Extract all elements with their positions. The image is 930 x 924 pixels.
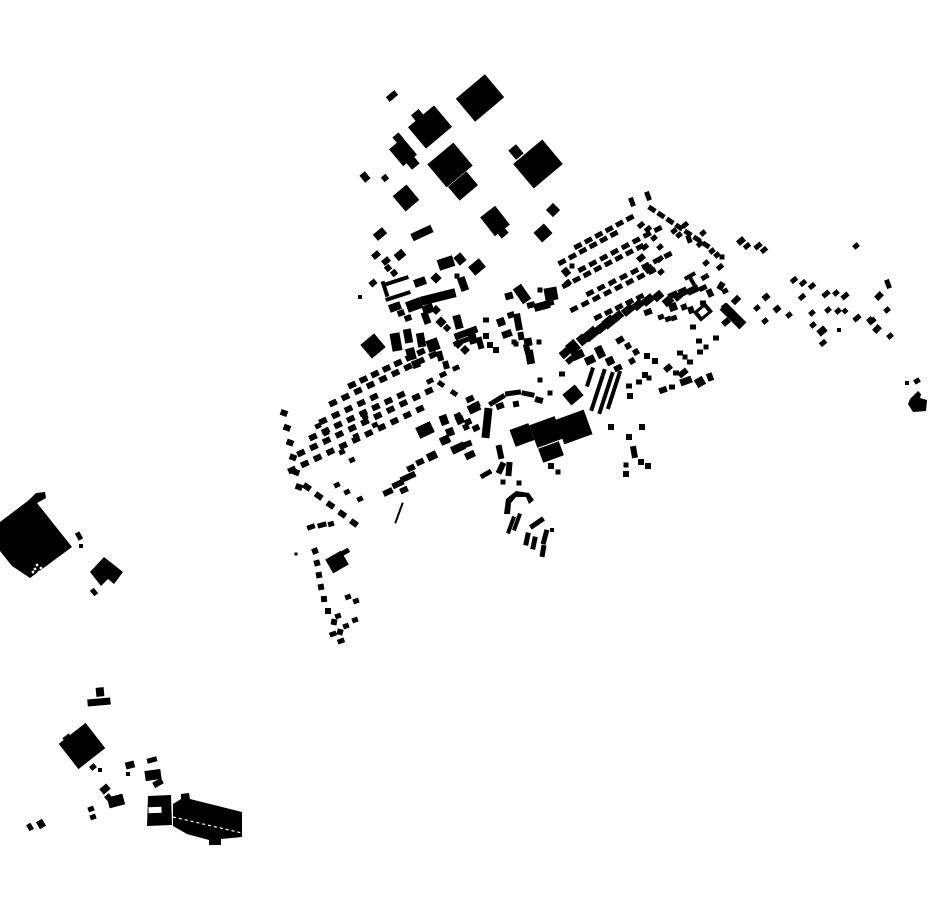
- arch-building: [504, 491, 534, 514]
- building: [541, 529, 550, 545]
- building: [437, 255, 456, 270]
- building: [523, 532, 531, 546]
- building: [368, 278, 377, 287]
- building-row-house: [580, 299, 589, 307]
- building: [381, 256, 391, 266]
- building: [381, 174, 389, 182]
- building: [538, 288, 543, 293]
- building: [720, 303, 747, 330]
- building: [761, 317, 769, 325]
- building: [334, 613, 341, 620]
- building-row-house: [426, 377, 434, 384]
- building: [837, 328, 841, 332]
- building: [884, 279, 892, 289]
- building: [688, 276, 696, 287]
- building: [905, 381, 909, 385]
- building: [624, 463, 629, 468]
- building: [626, 434, 632, 440]
- building: [821, 290, 830, 299]
- building: [96, 687, 105, 697]
- building-row-house: [328, 399, 338, 408]
- building: [394, 502, 403, 523]
- building-row-house: [411, 393, 421, 402]
- building: [624, 342, 632, 350]
- building: [550, 528, 554, 532]
- building-row-house: [331, 411, 341, 420]
- building: [329, 630, 337, 637]
- building: [343, 488, 351, 495]
- building: [98, 768, 102, 772]
- building: [808, 309, 816, 317]
- building-row-house: [382, 364, 392, 373]
- building-row-house: [337, 509, 347, 519]
- building: [638, 459, 644, 465]
- courtyard-cutout: [148, 807, 161, 813]
- building-row-house: [619, 273, 628, 281]
- building: [397, 309, 406, 317]
- building: [704, 345, 709, 350]
- building-row-house: [338, 441, 348, 450]
- building: [331, 619, 338, 626]
- building: [460, 345, 470, 355]
- building-row-house: [333, 421, 343, 430]
- building: [529, 516, 545, 529]
- building: [636, 253, 646, 263]
- building: [772, 304, 781, 313]
- building: [521, 390, 535, 398]
- building-row-house: [360, 418, 370, 427]
- building: [706, 288, 715, 298]
- building-row-house: [296, 449, 306, 458]
- building-row-house: [364, 429, 374, 438]
- building: [623, 471, 629, 477]
- building: [632, 348, 640, 356]
- building-row-house: [557, 258, 566, 266]
- building: [702, 259, 710, 267]
- building: [841, 307, 848, 314]
- building-row-house: [665, 217, 674, 226]
- building-row-house: [300, 459, 310, 468]
- building: [852, 242, 860, 250]
- building: [430, 272, 441, 283]
- building-row-house: [390, 417, 400, 426]
- building: [790, 276, 799, 284]
- building-row-house: [593, 265, 602, 273]
- building-row-house: [628, 197, 636, 207]
- building: [79, 544, 83, 548]
- building: [720, 255, 725, 260]
- building: [356, 495, 364, 502]
- building: [761, 292, 770, 301]
- building: [699, 229, 707, 237]
- building-row-house: [416, 348, 426, 357]
- building-row-house: [393, 359, 403, 368]
- building: [403, 328, 413, 343]
- building: [883, 306, 891, 314]
- building: [318, 584, 325, 591]
- building: [636, 380, 642, 385]
- building: [530, 536, 538, 550]
- building-row-house: [402, 411, 412, 420]
- building: [760, 246, 769, 254]
- building: [687, 360, 693, 365]
- building: [439, 414, 450, 426]
- building: [483, 333, 489, 339]
- building: [89, 814, 96, 821]
- building: [75, 531, 83, 540]
- building: [327, 521, 334, 527]
- building-row-house: [603, 289, 612, 297]
- building: [359, 171, 370, 182]
- building: [584, 354, 596, 365]
- building: [351, 617, 358, 624]
- building-row-house: [353, 387, 363, 396]
- building: [393, 185, 420, 212]
- building: [493, 347, 499, 353]
- building: [443, 324, 451, 332]
- building: [415, 458, 425, 467]
- building: [644, 353, 650, 359]
- building: [410, 225, 433, 242]
- building: [643, 308, 653, 316]
- building: [496, 445, 505, 460]
- building: [832, 289, 840, 297]
- building: [457, 276, 469, 292]
- building-row-house: [289, 453, 298, 461]
- building-row-house: [308, 433, 318, 442]
- se-courtyard-building: [90, 557, 123, 586]
- building: [416, 332, 426, 347]
- building: [481, 408, 492, 439]
- building: [630, 446, 638, 459]
- building: [798, 293, 807, 301]
- building: [677, 351, 683, 356]
- building: [559, 372, 565, 377]
- building: [126, 772, 130, 776]
- building: [406, 464, 416, 473]
- building: [669, 385, 675, 390]
- building: [453, 252, 466, 265]
- building: [543, 286, 558, 301]
- building: [716, 263, 725, 271]
- building-row-house: [386, 405, 396, 414]
- building: [523, 337, 532, 346]
- building: [348, 456, 356, 463]
- building: [483, 318, 489, 323]
- building-row-house: [370, 370, 380, 379]
- building-row-house: [349, 518, 359, 528]
- building: [700, 273, 709, 281]
- building-row-house: [341, 393, 351, 402]
- building: [333, 481, 341, 488]
- building: [87, 698, 111, 707]
- building: [352, 598, 359, 605]
- building: [637, 221, 646, 229]
- building: [556, 470, 561, 475]
- building: [514, 342, 519, 347]
- building-row-house: [415, 405, 425, 414]
- building: [496, 461, 507, 474]
- building: [548, 391, 553, 396]
- building-row-house: [286, 439, 295, 447]
- building: [626, 384, 632, 389]
- building: [501, 329, 513, 339]
- building-row-house: [625, 214, 634, 222]
- building: [464, 450, 476, 461]
- building: [537, 340, 542, 345]
- building: [456, 74, 504, 121]
- building: [413, 276, 427, 288]
- building-row-house: [653, 225, 662, 233]
- building-row-house: [314, 491, 324, 501]
- building: [455, 274, 460, 279]
- building: [321, 596, 328, 603]
- building: [472, 424, 481, 432]
- building: [605, 356, 616, 367]
- building-row-house: [369, 393, 379, 402]
- building: [306, 523, 315, 530]
- building-row-house: [302, 482, 312, 492]
- building: [337, 637, 345, 644]
- building-row-house: [378, 375, 388, 384]
- building: [505, 462, 512, 476]
- building-row-house: [577, 265, 586, 273]
- building: [663, 363, 673, 373]
- buildings-layer: [0, 74, 927, 845]
- building: [325, 608, 331, 614]
- building: [840, 292, 849, 301]
- building: [501, 480, 506, 485]
- building: [404, 314, 413, 322]
- building: [785, 311, 793, 319]
- building-row-house: [373, 411, 383, 420]
- building: [886, 332, 894, 340]
- building: [338, 448, 346, 455]
- building: [399, 486, 409, 495]
- building: [36, 819, 46, 829]
- building: [656, 243, 664, 251]
- building-row-house: [621, 242, 630, 250]
- building: [628, 357, 636, 365]
- building: [808, 282, 817, 290]
- building: [421, 311, 432, 325]
- building: [697, 350, 703, 355]
- building: [615, 335, 625, 344]
- building: [442, 360, 450, 369]
- building-row-house: [356, 399, 366, 408]
- building-row-house: [582, 270, 591, 278]
- building: [371, 250, 381, 260]
- building: [700, 301, 706, 306]
- building: [608, 424, 614, 430]
- building-row-house: [396, 391, 406, 400]
- building-row-house: [625, 248, 634, 256]
- building: [533, 300, 551, 312]
- building-row-house: [359, 375, 369, 384]
- building-row-house: [599, 253, 608, 261]
- building: [647, 376, 652, 381]
- building-row-house: [630, 267, 639, 275]
- building-row-house: [403, 363, 413, 372]
- building: [874, 291, 884, 301]
- building-row-house: [644, 191, 652, 201]
- building: [534, 396, 543, 404]
- building: [627, 393, 633, 399]
- building: [373, 227, 387, 241]
- building: [513, 284, 532, 304]
- building-row-house: [377, 423, 387, 432]
- building: [87, 806, 94, 813]
- building-row-house: [346, 415, 356, 424]
- building: [316, 572, 323, 579]
- building: [538, 378, 543, 383]
- building: [517, 481, 522, 486]
- building: [533, 223, 552, 242]
- building-row-house: [399, 399, 409, 408]
- stipple-dot: [41, 573, 44, 576]
- building: [419, 288, 456, 305]
- building: [819, 339, 828, 347]
- building: [834, 307, 842, 315]
- building-row-house: [593, 313, 602, 321]
- building: [496, 317, 506, 327]
- building: [383, 275, 409, 287]
- building: [694, 376, 706, 388]
- building: [736, 236, 746, 246]
- stipple-dot: [43, 569, 46, 572]
- building: [90, 588, 98, 597]
- building: [342, 623, 349, 630]
- building: [59, 723, 105, 769]
- industrial-hall-building: [173, 793, 242, 845]
- building: [487, 342, 493, 348]
- building: [336, 628, 343, 635]
- building-row-house: [347, 424, 357, 433]
- building: [386, 90, 398, 102]
- building-row-house: [604, 308, 613, 316]
- building-row-house: [608, 278, 617, 286]
- building: [731, 295, 742, 306]
- building: [585, 367, 595, 387]
- building-row-house: [632, 236, 641, 244]
- building: [465, 395, 475, 404]
- building: [468, 258, 486, 275]
- building: [313, 559, 320, 566]
- building: [713, 336, 719, 341]
- building: [548, 463, 554, 469]
- building: [99, 783, 110, 794]
- building-row-house: [569, 305, 578, 313]
- building: [505, 389, 522, 396]
- building: [690, 325, 696, 330]
- building: [26, 823, 34, 832]
- building-row-house: [391, 369, 401, 378]
- building: [613, 364, 623, 373]
- building: [408, 105, 452, 148]
- building: [753, 304, 761, 312]
- building-row-house: [295, 483, 304, 491]
- building-row-house: [636, 272, 645, 280]
- building: [513, 140, 563, 189]
- building-row-house: [326, 500, 336, 510]
- building: [546, 203, 560, 217]
- building-row-house: [347, 381, 357, 390]
- building: [570, 264, 575, 269]
- building: [89, 763, 97, 771]
- building-row-house: [647, 205, 656, 214]
- building: [824, 306, 832, 314]
- building-row-house: [313, 453, 323, 462]
- building: [504, 292, 514, 301]
- building-row-house: [614, 254, 623, 262]
- building-row-house: [585, 289, 594, 297]
- map-figure: [0, 0, 930, 924]
- right-edge-building: [908, 391, 927, 412]
- building-row-house: [326, 447, 336, 456]
- building-row-house: [280, 409, 289, 417]
- building: [852, 314, 861, 323]
- building: [415, 421, 435, 439]
- building: [706, 372, 714, 382]
- building: [658, 386, 668, 394]
- building-row-house: [572, 275, 581, 283]
- building-row-house: [439, 371, 447, 378]
- building-row-house: [588, 259, 597, 267]
- building-row-house: [615, 220, 624, 228]
- stipple-dot: [49, 572, 52, 575]
- building-row-house: [610, 248, 619, 256]
- building-row-house: [452, 364, 460, 371]
- building-row-house: [344, 405, 354, 414]
- building: [311, 547, 319, 555]
- building: [680, 303, 688, 311]
- building: [513, 401, 520, 408]
- building-row-house: [596, 283, 605, 291]
- building: [872, 324, 882, 334]
- building: [539, 545, 546, 558]
- building: [594, 345, 606, 359]
- building-row-house: [424, 387, 434, 396]
- building: [645, 463, 651, 469]
- building: [295, 553, 298, 556]
- building-row-house: [309, 442, 319, 451]
- building-footprint-map: [0, 0, 930, 924]
- building-row-house: [592, 294, 601, 302]
- building: [816, 325, 827, 336]
- building-row-house: [656, 211, 665, 220]
- building: [696, 339, 702, 344]
- building: [480, 469, 493, 479]
- building: [390, 332, 403, 351]
- building-row-house: [366, 381, 376, 390]
- building-row-house: [384, 397, 394, 406]
- building-row-house: [625, 278, 634, 286]
- building: [390, 269, 398, 277]
- building-row-house: [663, 251, 672, 259]
- building: [677, 367, 689, 378]
- building-row-house: [568, 252, 577, 260]
- building: [639, 424, 645, 430]
- building: [657, 268, 665, 276]
- building-row-house: [437, 380, 446, 388]
- building: [652, 358, 658, 364]
- building: [358, 295, 362, 299]
- building: [147, 756, 158, 763]
- building: [425, 337, 440, 352]
- building: [426, 450, 438, 461]
- building: [344, 594, 351, 601]
- building: [562, 384, 583, 405]
